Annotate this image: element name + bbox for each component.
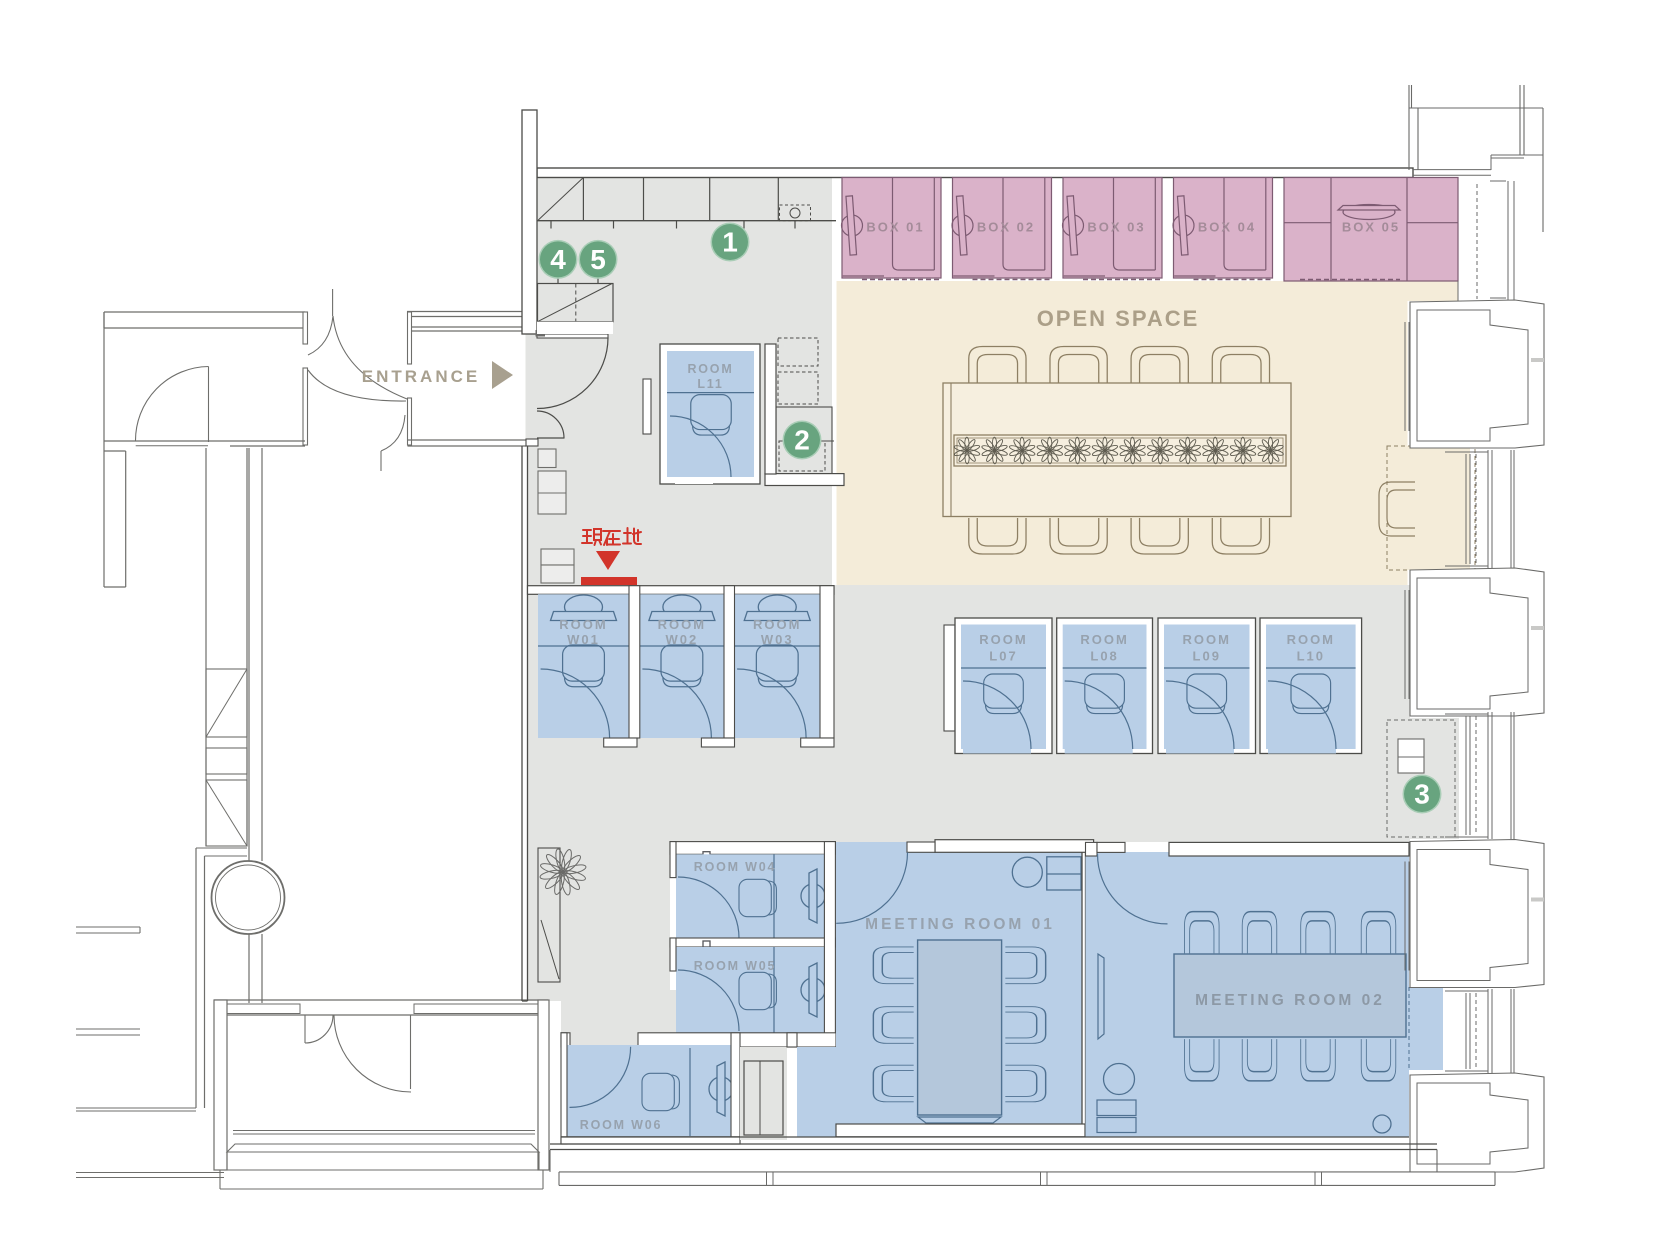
svg-text:L08: L08 (1090, 649, 1118, 664)
svg-text:BOX 01: BOX 01 (866, 220, 924, 235)
svg-text:3: 3 (1414, 779, 1430, 810)
svg-text:MEETING ROOM 02: MEETING ROOM 02 (1195, 992, 1385, 1009)
svg-text:L10: L10 (1297, 649, 1325, 664)
svg-text:L07: L07 (989, 649, 1017, 664)
svg-text:ROOM W04: ROOM W04 (694, 860, 776, 874)
svg-text:ROOM: ROOM (1080, 632, 1128, 647)
svg-text:W02: W02 (666, 632, 699, 647)
svg-text:BOX 03: BOX 03 (1087, 220, 1145, 235)
svg-text:L11: L11 (697, 377, 723, 391)
svg-text:W01: W01 (567, 632, 600, 647)
svg-text:W03: W03 (761, 632, 794, 647)
svg-text:4: 4 (550, 244, 566, 275)
svg-text:ROOM: ROOM (658, 617, 706, 632)
svg-text:1: 1 (722, 227, 738, 258)
svg-text:ROOM: ROOM (753, 617, 801, 632)
svg-text:ROOM W06: ROOM W06 (580, 1118, 662, 1132)
svg-text:BOX 05: BOX 05 (1342, 220, 1400, 235)
svg-text:ROOM: ROOM (687, 362, 733, 376)
svg-text:ROOM: ROOM (979, 632, 1027, 647)
svg-text:ROOM: ROOM (1183, 632, 1231, 647)
svg-text:5: 5 (590, 244, 606, 275)
svg-text:ROOM: ROOM (1287, 632, 1335, 647)
svg-text:ROOM: ROOM (559, 617, 607, 632)
svg-text:BOX 02: BOX 02 (977, 220, 1035, 235)
svg-text:OPEN SPACE: OPEN SPACE (1037, 306, 1200, 331)
svg-text:MEETING ROOM 01: MEETING ROOM 01 (865, 916, 1055, 933)
svg-text:BOX 04: BOX 04 (1198, 220, 1256, 235)
svg-text:L09: L09 (1193, 649, 1221, 664)
svg-text:ENTRANCE: ENTRANCE (362, 367, 480, 386)
svg-text:2: 2 (794, 425, 810, 456)
svg-text:ROOM W05: ROOM W05 (694, 959, 776, 973)
